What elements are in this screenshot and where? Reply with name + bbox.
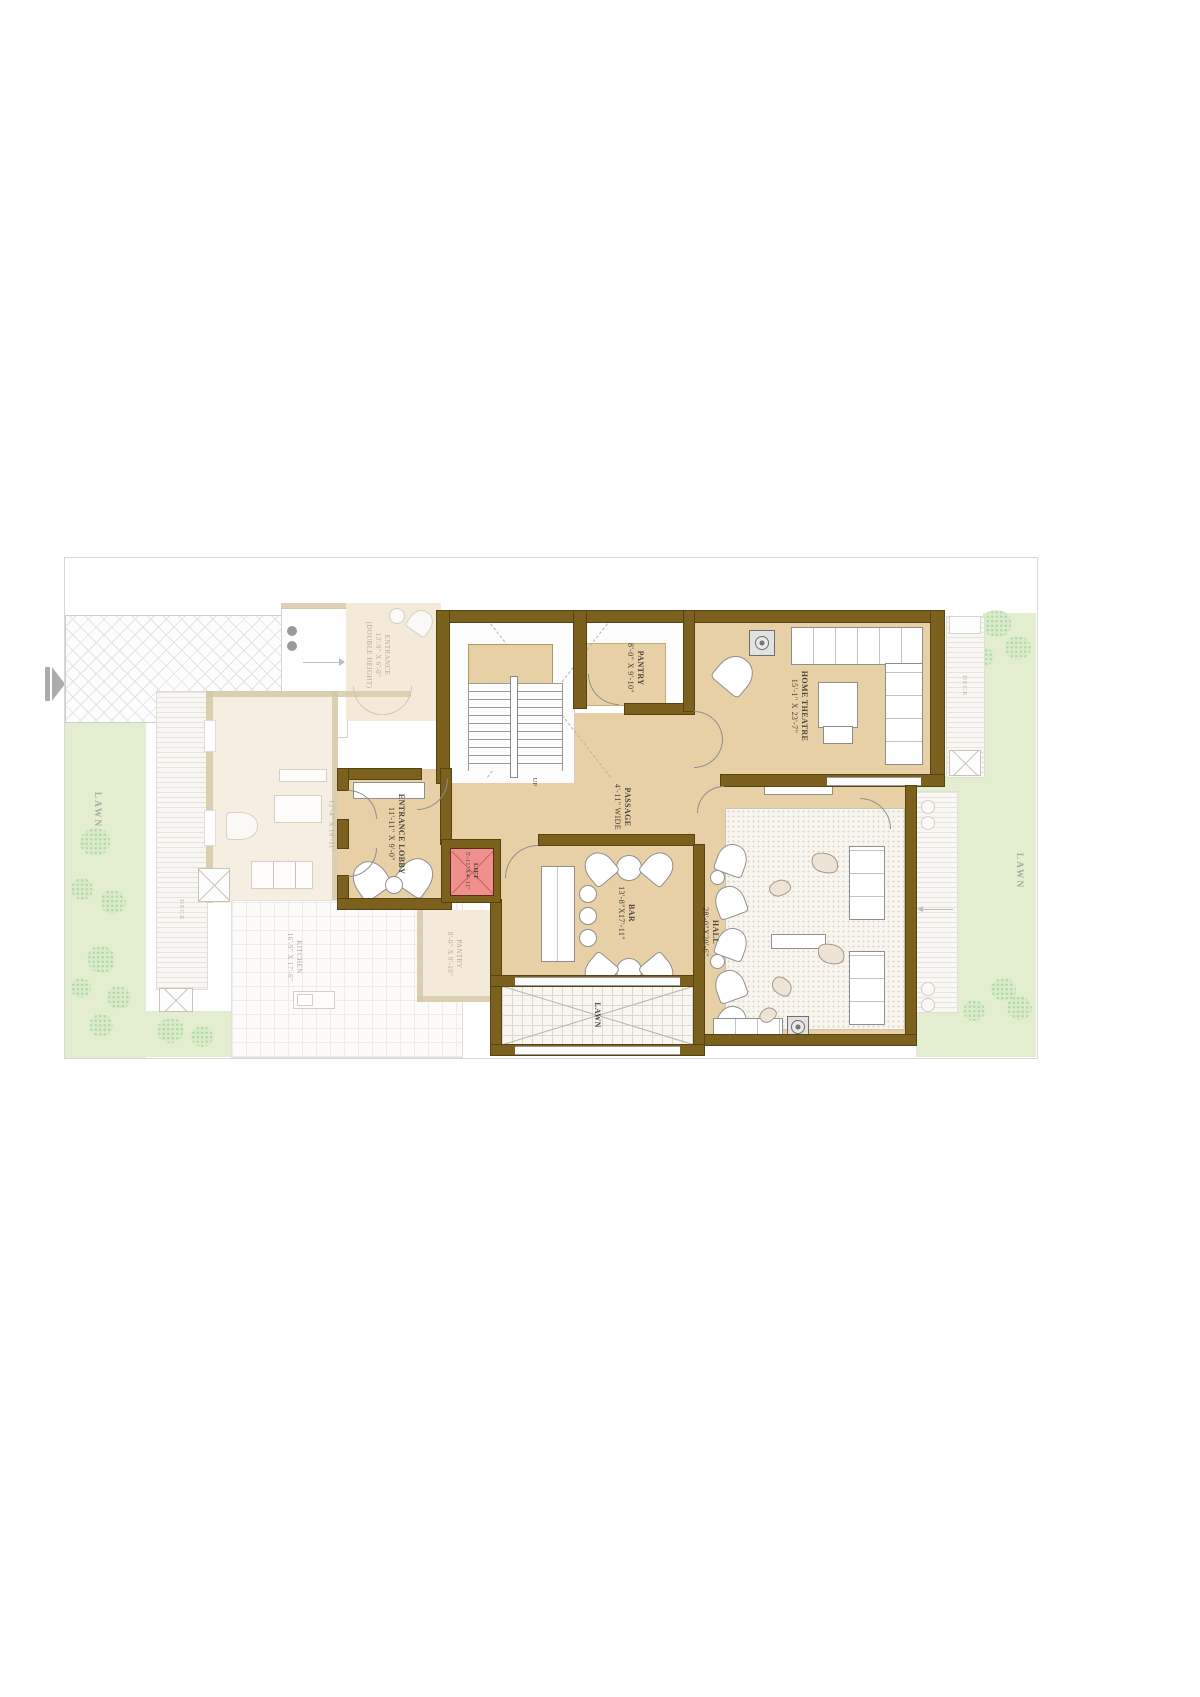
wall <box>437 611 449 783</box>
wall <box>338 899 451 909</box>
ghost-sink-basin <box>297 994 313 1006</box>
ghost-label-living-dims: 12'-4" X 18'-11" <box>327 800 336 852</box>
tree <box>963 1000 985 1021</box>
wall <box>338 769 348 790</box>
tree <box>107 986 131 1009</box>
window <box>515 1046 680 1055</box>
sofa <box>849 951 885 1025</box>
porch-column <box>287 641 297 651</box>
window <box>515 977 680 986</box>
path-arrow-line <box>921 909 953 910</box>
ghost-window <box>204 810 216 846</box>
tree <box>71 878 93 900</box>
tree <box>101 890 126 914</box>
bar-counter <box>541 866 575 962</box>
ghost-sofa <box>251 861 313 889</box>
recliner <box>818 682 858 728</box>
deck-cap <box>949 616 981 634</box>
ghost-pillar <box>198 868 230 902</box>
ghost-wall <box>417 910 423 1002</box>
lawn-left <box>65 691 146 1058</box>
tree <box>87 946 115 973</box>
wall <box>684 611 694 711</box>
tree <box>981 610 1011 637</box>
path-arrow-icon <box>917 906 923 912</box>
tree <box>157 1018 184 1043</box>
room-label-passage: PASSAGE4'-11" WIDE <box>612 784 632 830</box>
wall <box>906 786 916 1035</box>
room-label-entrance-lobby: ENTRANCE LOBBY11'-11" X 9'-0" <box>386 794 406 875</box>
ghost-label-kitchen: KITCHEN16'-9" X 17'-6" <box>285 933 303 981</box>
stair-up-label: UP <box>530 778 538 787</box>
speaker-icon <box>749 630 775 656</box>
theatre-sofa <box>791 627 923 665</box>
tree <box>1005 636 1031 660</box>
round-table <box>385 876 403 894</box>
wall <box>574 611 586 708</box>
stair-rail <box>510 676 518 778</box>
wall <box>931 611 944 786</box>
ghost-table <box>274 795 322 823</box>
lawn-right-label: LAWN <box>1012 853 1024 890</box>
ghost-console <box>279 769 327 782</box>
path-stone <box>921 800 935 814</box>
wall <box>338 820 348 848</box>
tree <box>71 978 91 998</box>
tree <box>191 1026 213 1047</box>
deck-left-label: DECK <box>177 899 185 921</box>
bar-stool <box>579 885 597 903</box>
ghost-wall <box>206 691 411 697</box>
ottoman <box>823 726 853 744</box>
porch-column <box>287 626 297 636</box>
room-label-home-theatre: HOME THEATRE15'-1" X 23'-7" <box>789 671 809 742</box>
ghost-wall <box>417 996 491 1002</box>
tree <box>89 1014 113 1037</box>
room-label-lawn-court: LAWN <box>592 1002 602 1028</box>
wall <box>338 769 421 779</box>
next-arrow-button[interactable] <box>45 667 65 701</box>
sofa <box>849 846 885 920</box>
wall <box>694 1035 916 1045</box>
window <box>827 777 921 786</box>
ghost-deck-left <box>156 691 208 990</box>
side-table <box>710 870 725 885</box>
wall <box>539 835 694 845</box>
room-label-bar: BAR13'-8"X17'-11" <box>616 886 636 940</box>
bar-stool <box>579 929 597 947</box>
path-stone <box>921 998 935 1012</box>
room-label-hall: HALL28'-0"X20'-6" <box>700 907 720 957</box>
ghost-table <box>389 608 405 624</box>
ghost-label-entrance: ENTRANCE13'-9" X 6'-0"(DOUBLE HEIGHT) <box>365 622 391 689</box>
deck-pillar <box>159 988 193 1012</box>
entry-arrow-icon <box>339 658 345 666</box>
wall <box>491 900 501 1045</box>
tree <box>80 828 110 856</box>
path-stone <box>921 816 935 830</box>
entry-arrow-line <box>303 662 341 663</box>
room-label-pantry: PANTRY8'-0" X 9'-10" <box>625 643 645 693</box>
floor-plan-image: PANTRY8'-0" X 9'-10" HOME THEATRE15'-1" … <box>64 557 1038 1059</box>
theatre-sofa <box>885 663 923 765</box>
room-label-lift: LIFT5'-11"X4'-11" <box>463 852 479 890</box>
ghost-window <box>204 720 216 752</box>
page: PANTRY8'-0" X 9'-10" HOME THEATRE15'-1" … <box>0 0 1200 1697</box>
deck-pillar <box>949 750 981 776</box>
tree <box>1007 996 1032 1020</box>
ghost-armchair <box>226 812 258 840</box>
path-stone <box>921 982 935 996</box>
bar-stool <box>579 907 597 925</box>
next-arrow-bar-icon <box>45 667 50 701</box>
deck-right-label: DECK <box>960 675 968 697</box>
ghost-label-pantry: PANTRY8'-0" X 9'-10" <box>445 932 463 977</box>
lawn-left-label: LAWN <box>90 792 102 829</box>
